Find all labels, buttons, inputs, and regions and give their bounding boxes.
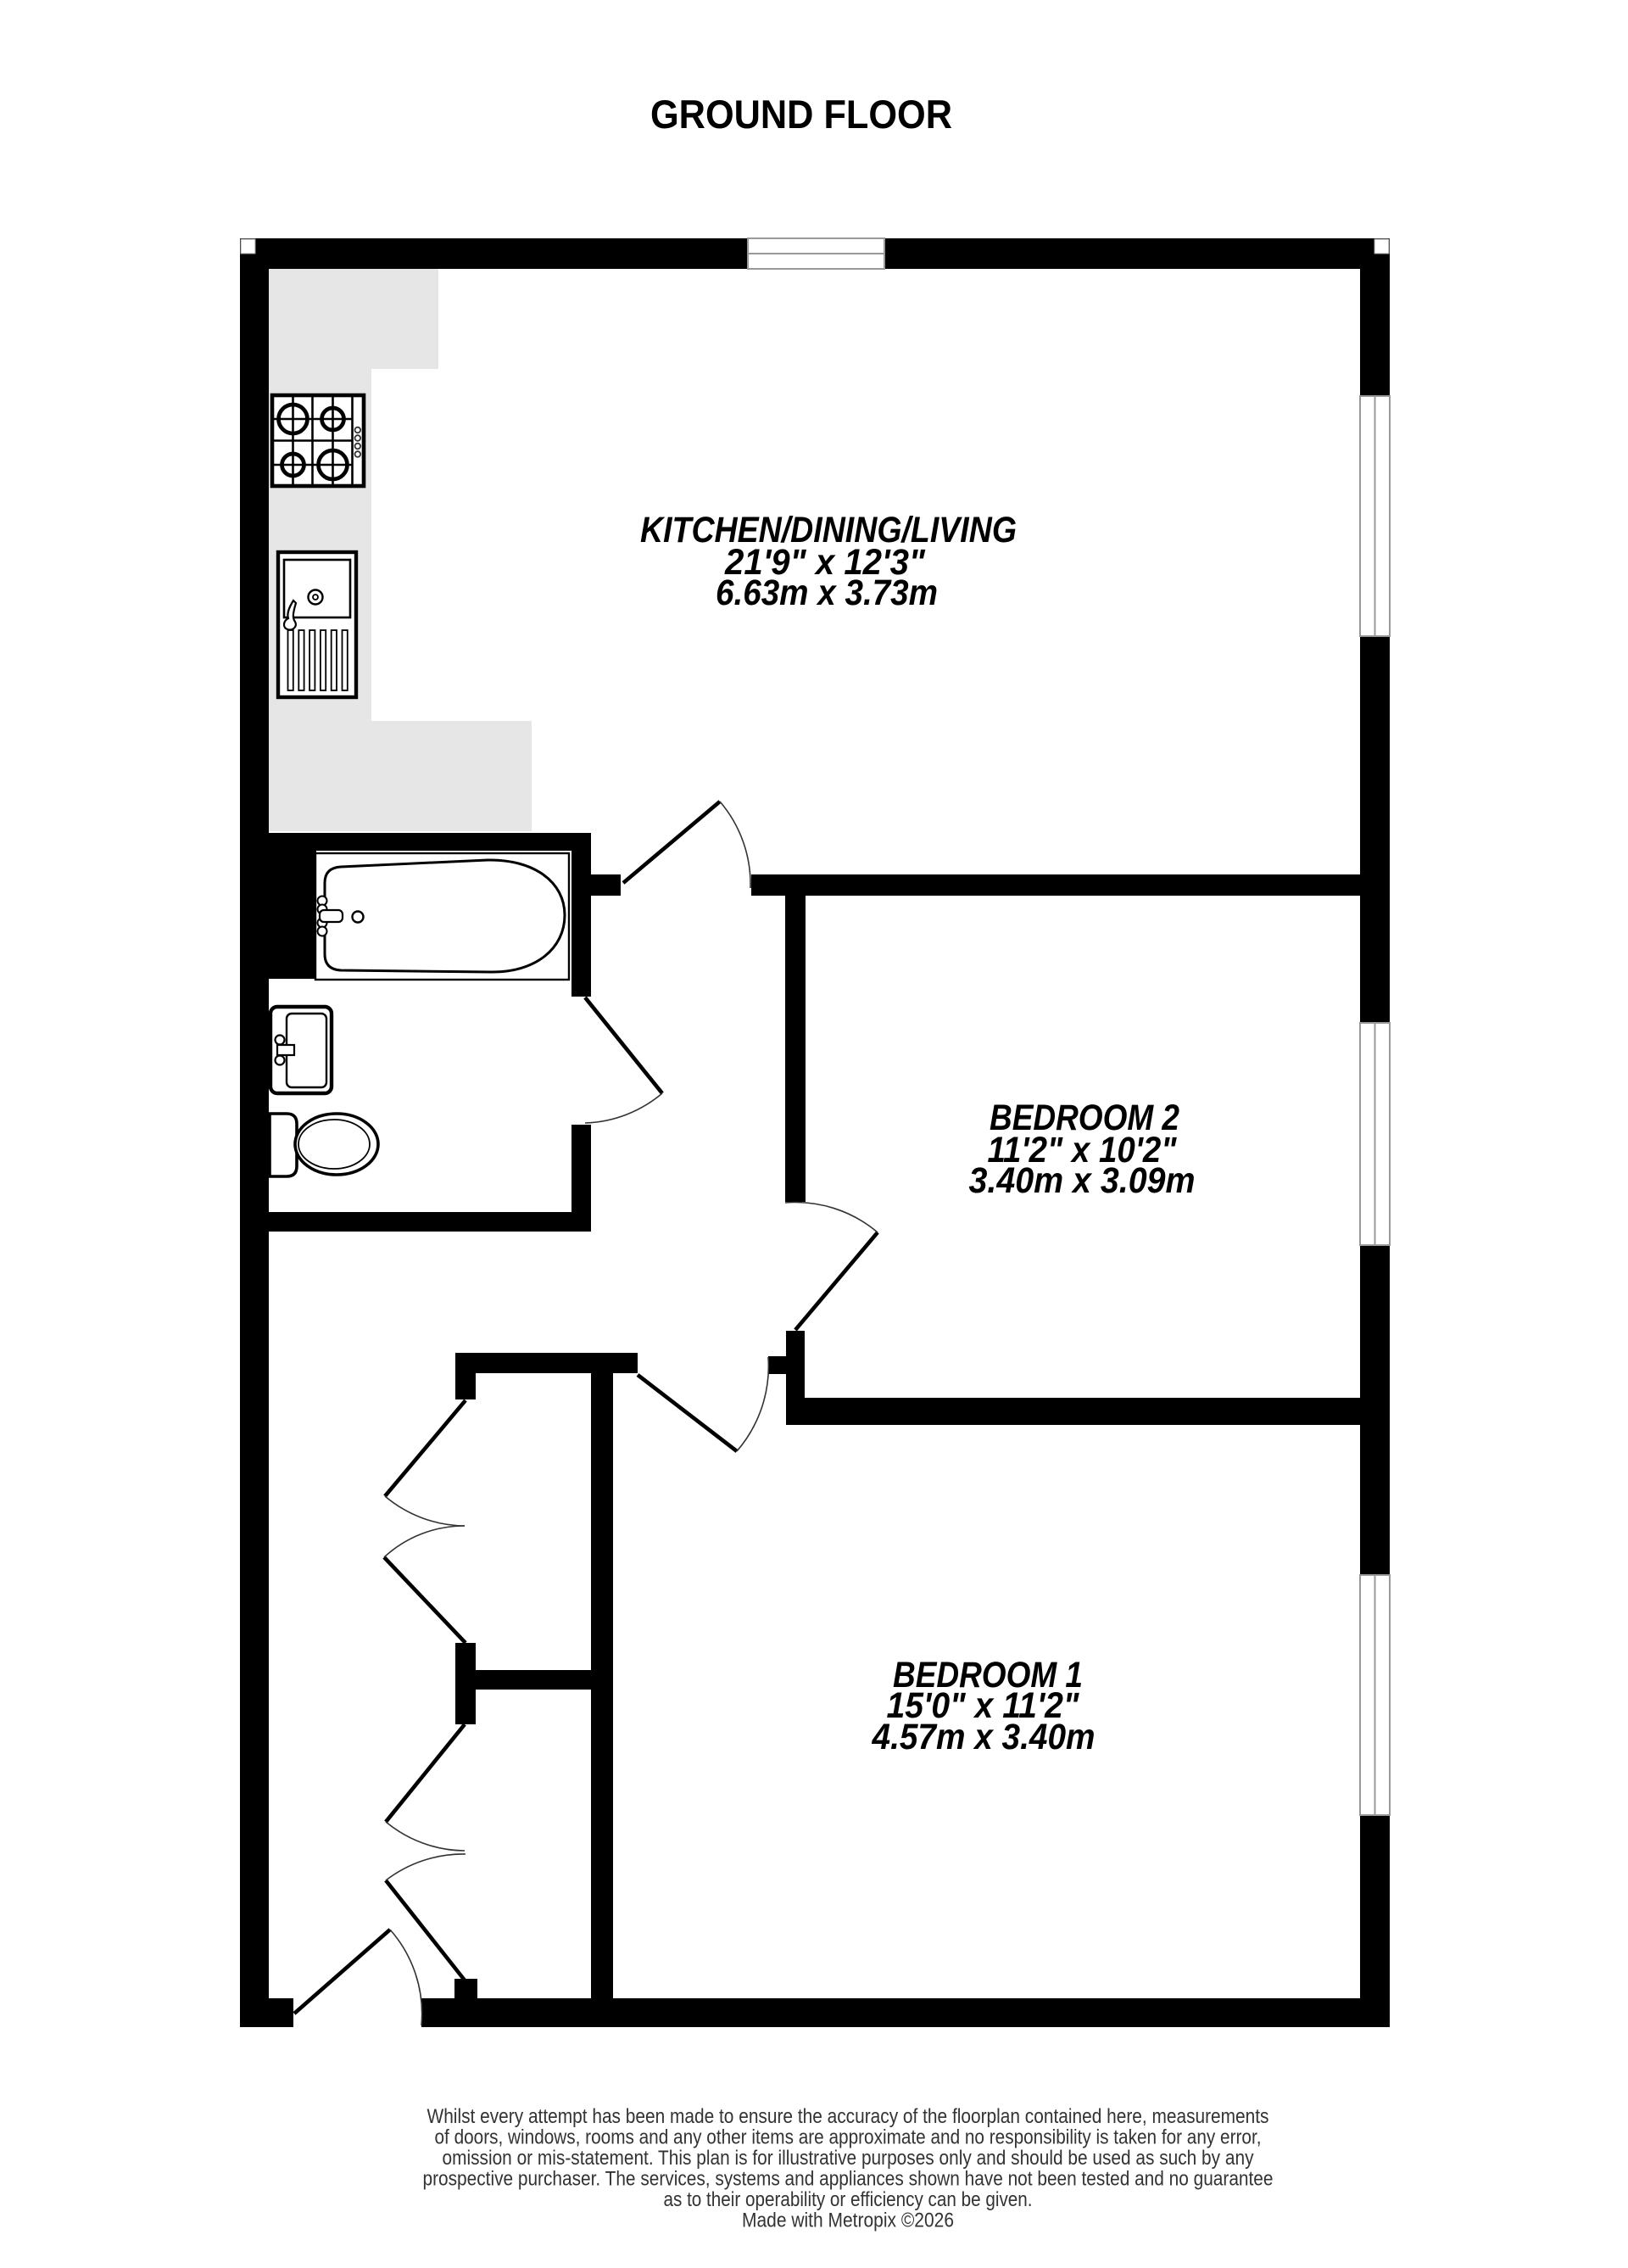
svg-text:3.40m x 3.09m: 3.40m x 3.09m bbox=[969, 1160, 1196, 1201]
svg-text:GROUND FLOOR: GROUND FLOOR bbox=[650, 92, 952, 137]
svg-text:omission or mis-statement. Thi: omission or mis-statement. This plan is … bbox=[443, 2147, 1254, 2170]
svg-text:of doors, windows, rooms and a: of doors, windows, rooms and any other i… bbox=[435, 2126, 1262, 2149]
svg-text:as to their operability or eff: as to their operability or efficiency ca… bbox=[664, 2188, 1033, 2211]
svg-text:prospective purchaser. The ser: prospective purchaser. The services, sys… bbox=[423, 2168, 1274, 2191]
svg-text:Whilst every attempt has been: Whilst every attempt has been made to en… bbox=[427, 2105, 1269, 2128]
svg-text:Made with Metropix ©2026: Made with Metropix ©2026 bbox=[742, 2209, 954, 2232]
svg-text:4.57m x 3.40m: 4.57m x 3.40m bbox=[872, 1717, 1096, 1757]
svg-text:6.63m x 3.73m: 6.63m x 3.73m bbox=[716, 573, 938, 613]
